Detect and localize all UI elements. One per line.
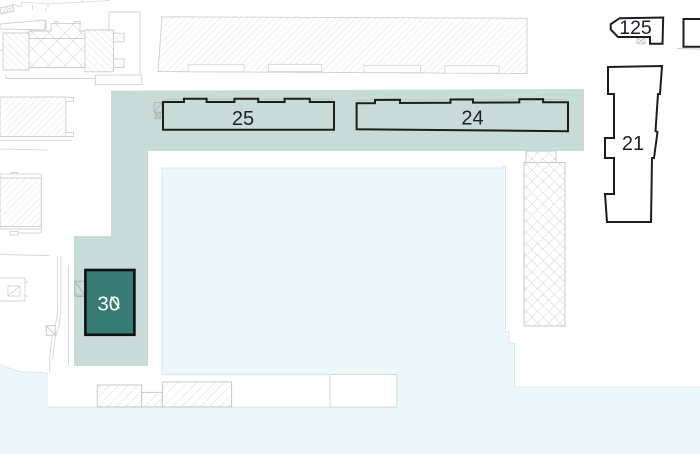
svg-text:25: 25 bbox=[232, 108, 254, 130]
svg-text:24: 24 bbox=[461, 108, 483, 130]
svg-text:21: 21 bbox=[622, 133, 644, 155]
svg-text:125: 125 bbox=[619, 17, 652, 39]
